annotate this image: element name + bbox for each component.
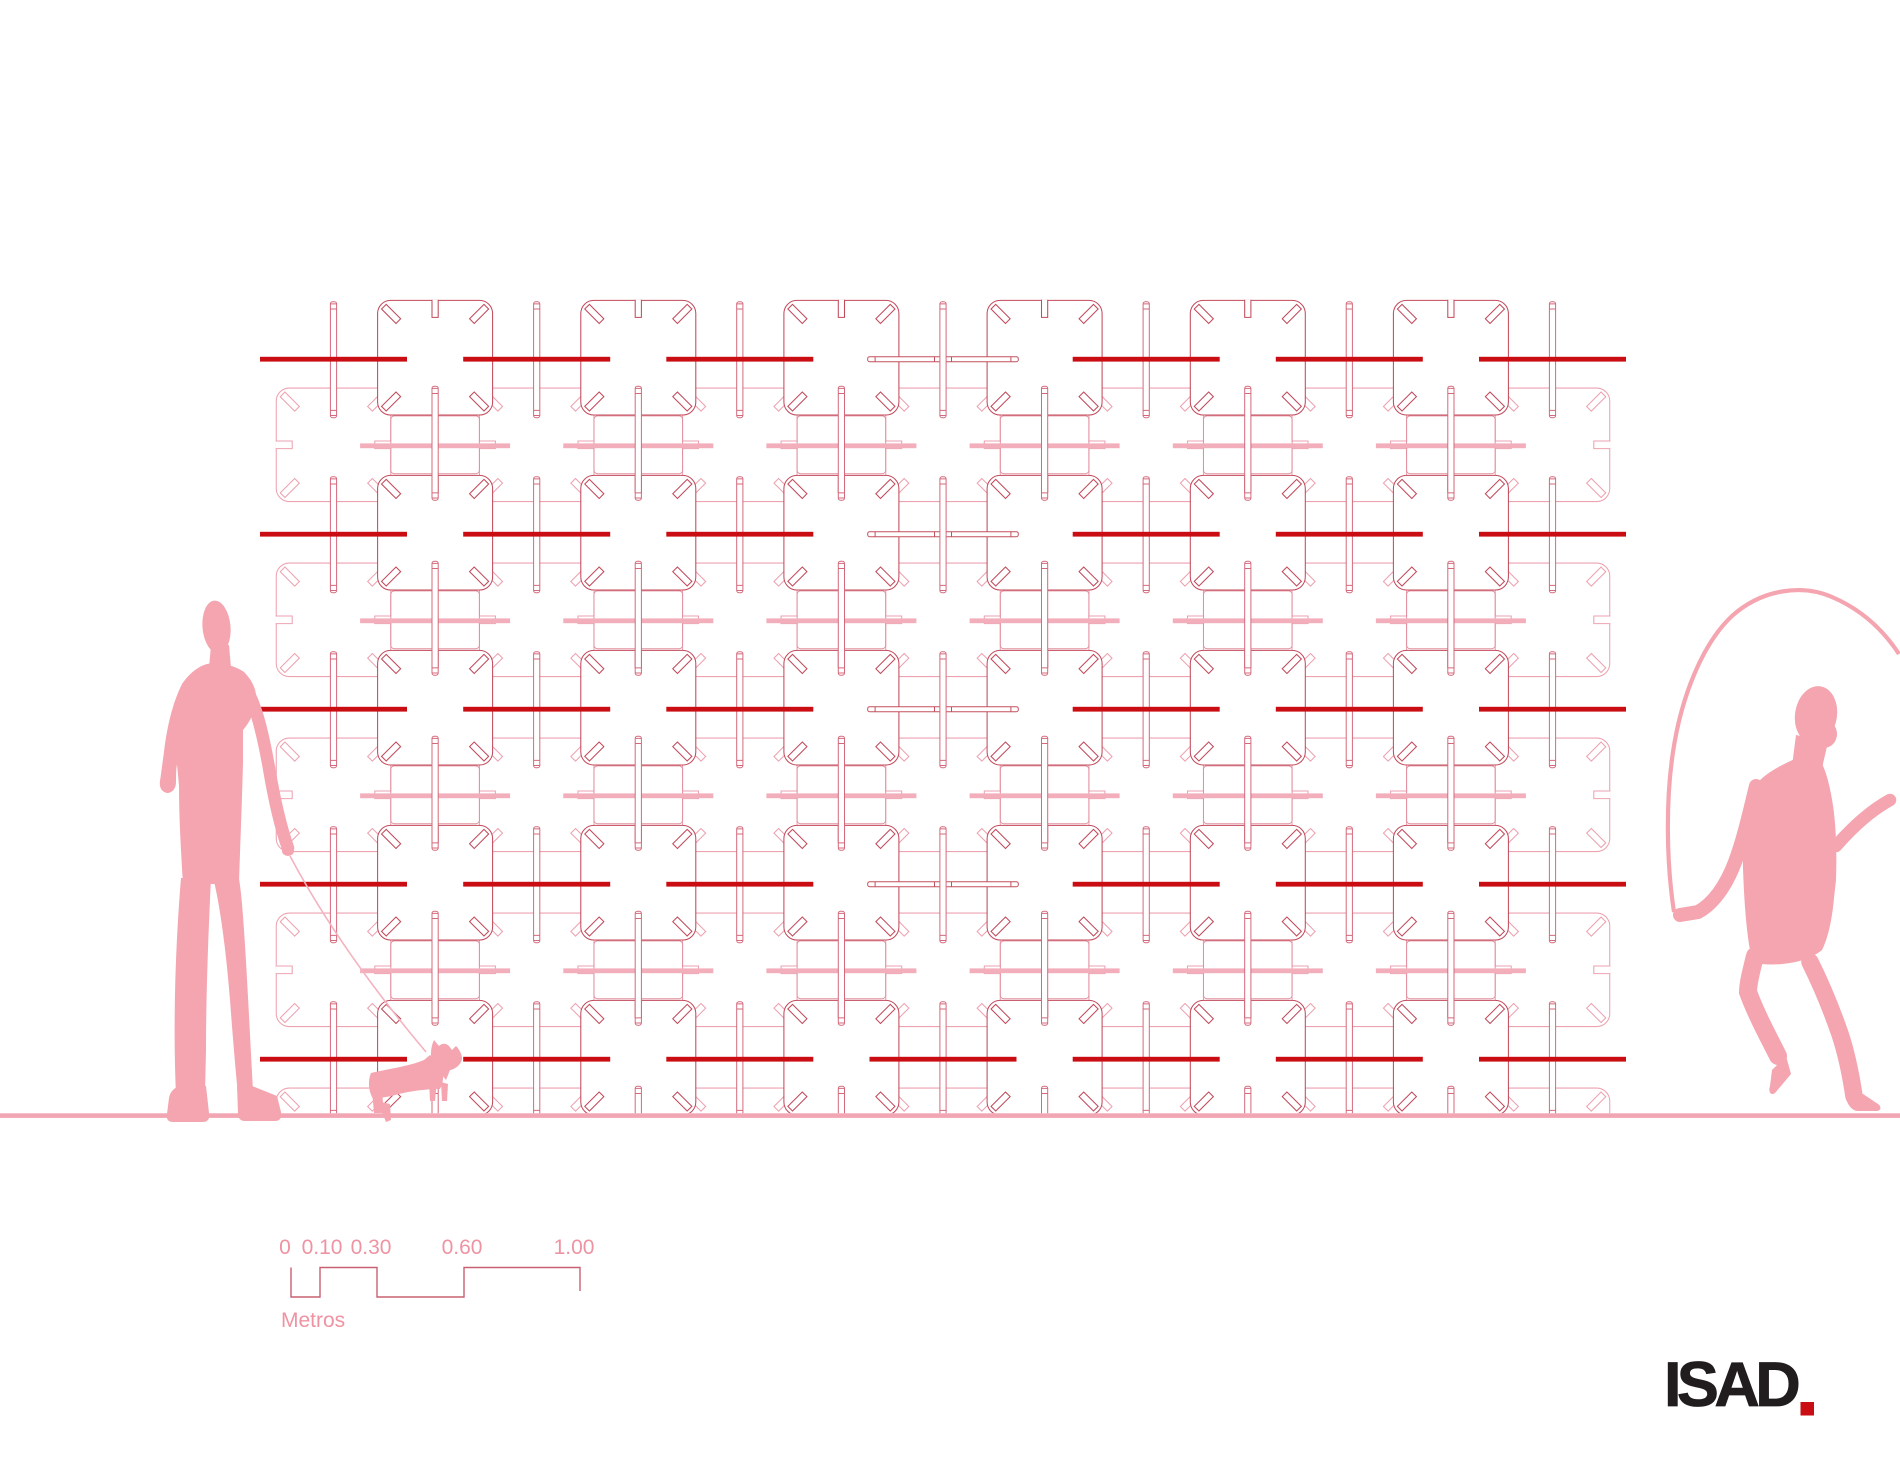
- svg-text:0.30: 0.30: [351, 1236, 392, 1259]
- svg-text:0.60: 0.60: [442, 1236, 483, 1259]
- svg-text:ISAD: ISAD: [1664, 1350, 1798, 1420]
- svg-text:0: 0: [279, 1236, 291, 1259]
- svg-text:1.00: 1.00: [554, 1236, 595, 1259]
- svg-text:0.10: 0.10: [302, 1236, 343, 1259]
- svg-text:Metros: Metros: [281, 1309, 345, 1332]
